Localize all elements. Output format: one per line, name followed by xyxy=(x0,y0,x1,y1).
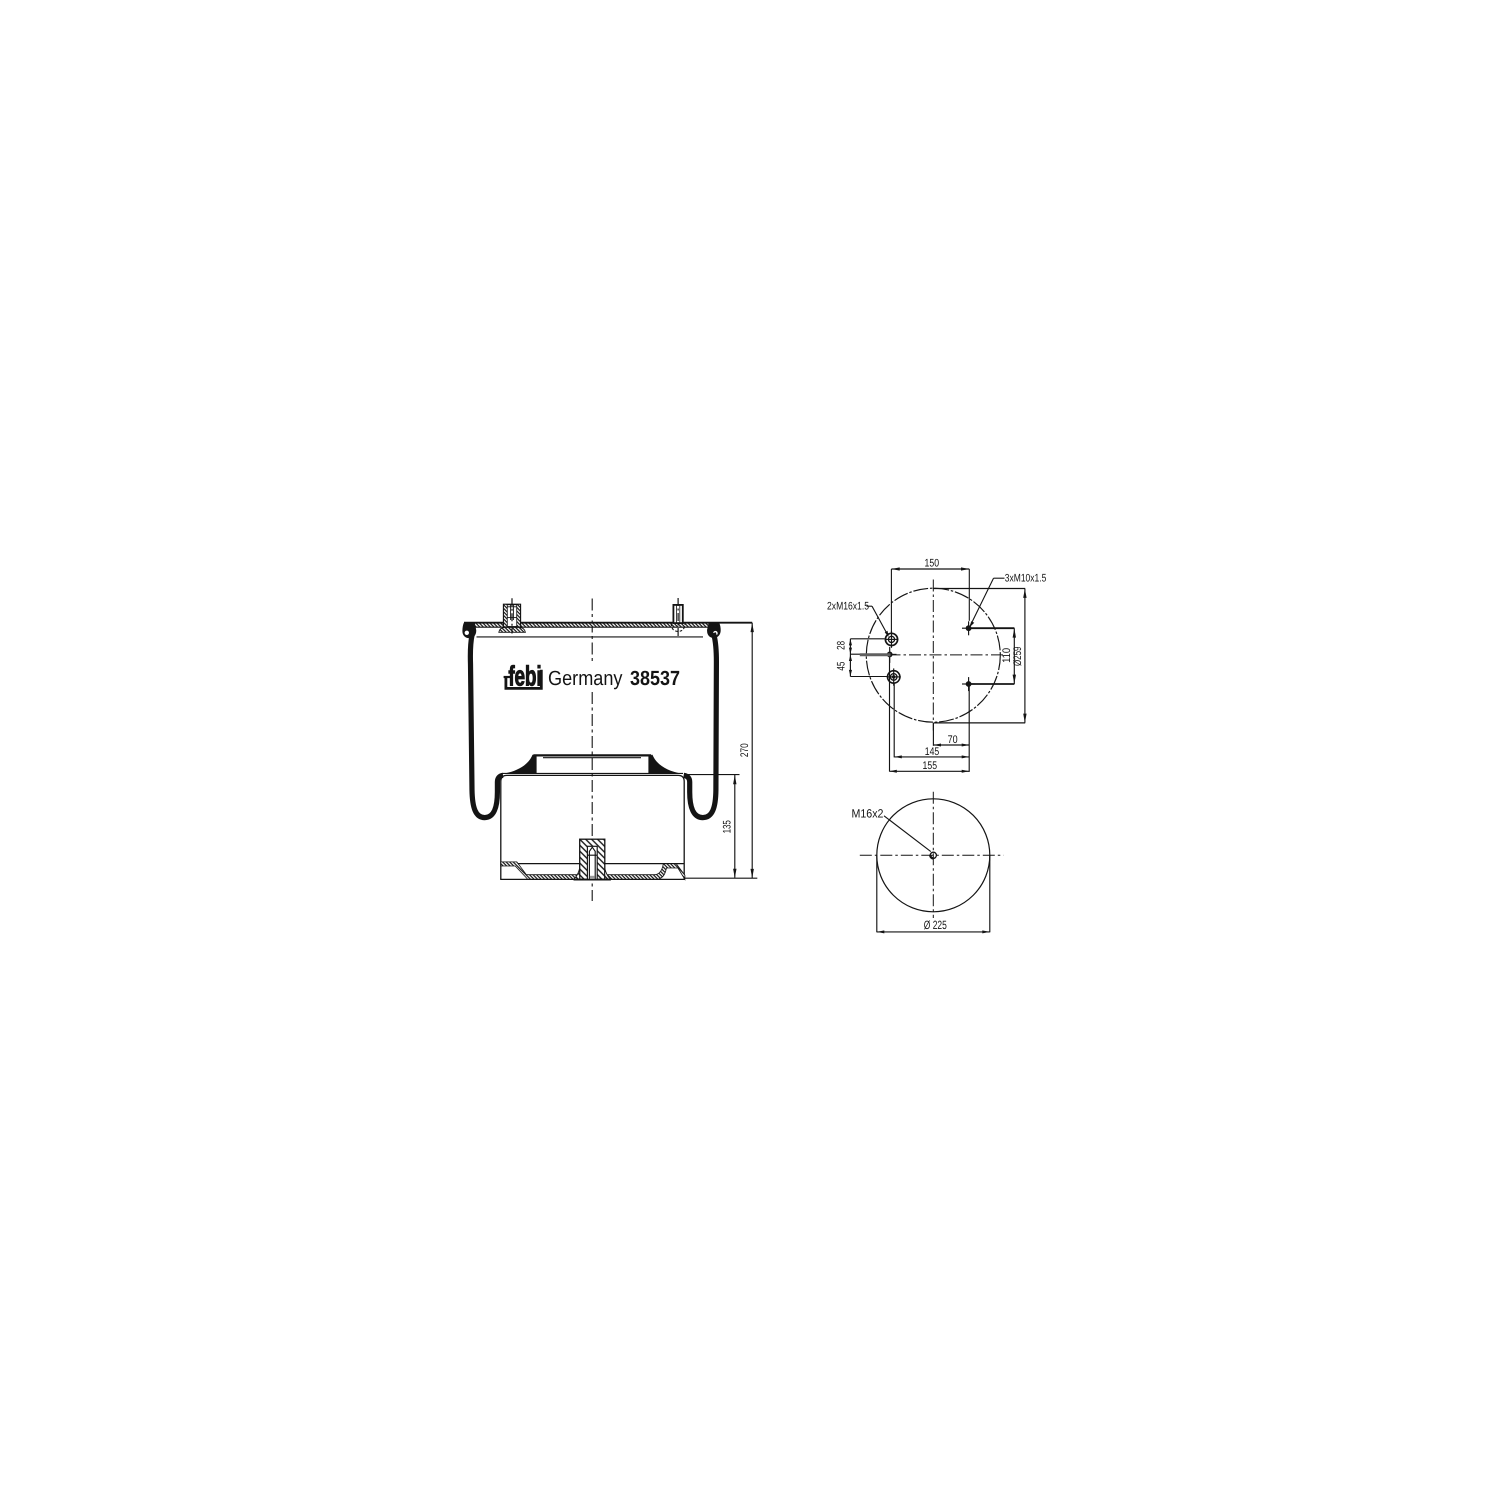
svg-text:2xM16x1.5: 2xM16x1.5 xyxy=(827,600,869,612)
svg-text:Ø 225: Ø 225 xyxy=(924,918,947,932)
svg-text:145: 145 xyxy=(925,746,940,758)
svg-text:70: 70 xyxy=(948,734,958,746)
svg-text:28: 28 xyxy=(836,641,848,650)
svg-text:155: 155 xyxy=(923,760,938,772)
svg-text:135: 135 xyxy=(721,820,733,833)
svg-text:38537: 38537 xyxy=(630,667,680,690)
svg-text:45: 45 xyxy=(836,662,848,671)
svg-text:3xM10x1.5: 3xM10x1.5 xyxy=(1005,572,1047,584)
svg-text:Germany: Germany xyxy=(548,667,623,690)
svg-text:110: 110 xyxy=(1001,648,1013,663)
svg-text:150: 150 xyxy=(925,557,940,569)
svg-text:M16x2: M16x2 xyxy=(852,806,884,820)
svg-text:febi: febi xyxy=(508,661,541,692)
svg-text:270: 270 xyxy=(739,743,751,757)
svg-text:Ø259: Ø259 xyxy=(1012,647,1024,667)
